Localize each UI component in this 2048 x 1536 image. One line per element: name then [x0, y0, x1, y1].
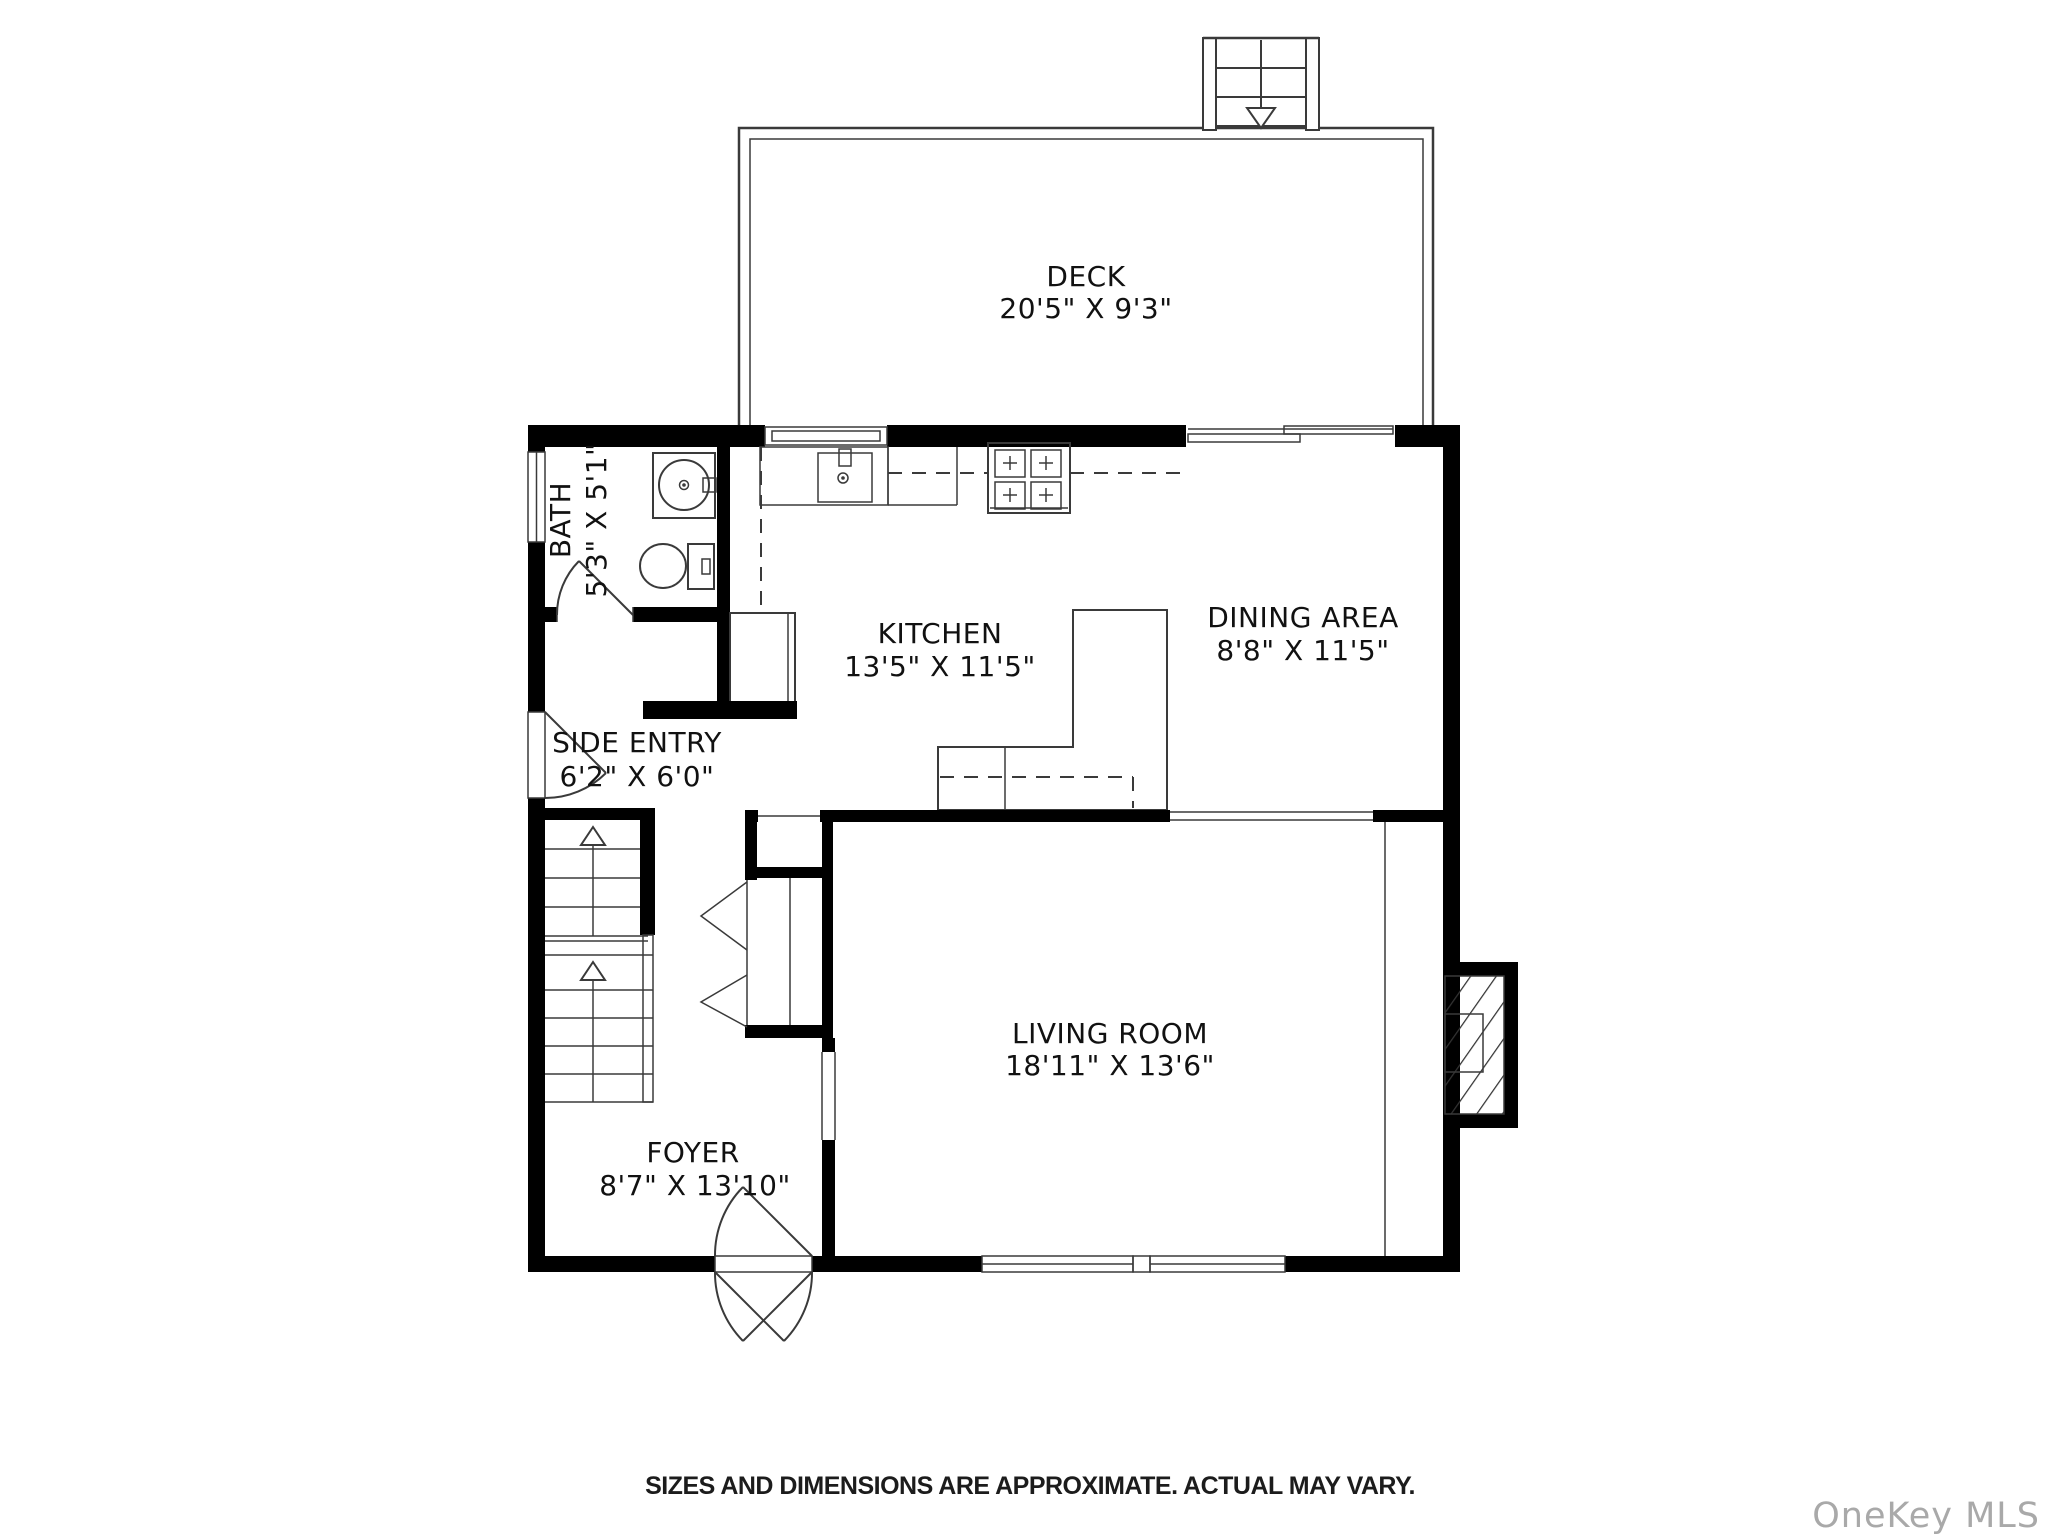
foyer-dims: 8'7" X 13'10" — [599, 1169, 791, 1202]
front-door — [715, 1187, 812, 1341]
kitchen-sink — [818, 449, 872, 502]
floor-plan-drawing: DECK 20'5" X 9'3" BATH 5'3" X 5'1" KITCH… — [0, 0, 2048, 1536]
deck-dims: 20'5" X 9'3" — [999, 292, 1172, 325]
stove — [988, 443, 1070, 513]
bath-sink — [653, 453, 716, 518]
bifold-door-icon — [701, 975, 747, 1027]
watermark: OneKey MLS — [1812, 1496, 2040, 1536]
disclaimer-text: SIZES AND DIMENSIONS ARE APPROXIMATE. AC… — [645, 1472, 1415, 1500]
deck-stairs — [1203, 38, 1319, 130]
side-entry-dims: 6'2" X 6'0" — [560, 760, 715, 793]
stairs-up-arrow-icon — [581, 827, 605, 845]
dining-area-dims: 8'8" X 11'5" — [1216, 634, 1389, 667]
bath-dims: 5'3" X 5'1" — [580, 443, 613, 598]
refrigerator — [730, 613, 795, 705]
kitchen-label: KITCHEN — [878, 617, 1003, 650]
bath-label: BATH — [544, 482, 577, 558]
living-room-windows — [982, 1254, 1285, 1274]
sliding-glass-door — [1186, 423, 1395, 449]
dining-area-label: DINING AREA — [1207, 601, 1399, 634]
floor-plan-page: DECK 20'5" X 9'3" BATH 5'3" X 5'1" KITCH… — [0, 0, 2048, 1536]
living-room-label: LIVING ROOM — [1012, 1017, 1208, 1050]
main-stairs — [545, 808, 655, 1102]
living-room-dims: 18'11" X 13'6" — [1005, 1049, 1215, 1082]
bifold-door-icon — [701, 882, 747, 950]
room-labels: DECK 20'5" X 9'3" BATH 5'3" X 5'1" KITCH… — [544, 260, 1399, 1202]
kitchen-dims: 13'5" X 11'5" — [844, 650, 1036, 683]
foyer-label: FOYER — [646, 1136, 739, 1169]
deck-label: DECK — [1046, 260, 1125, 293]
foyer-closet — [701, 812, 833, 1038]
kitchen-window — [765, 423, 887, 449]
side-entry-label: SIDE ENTRY — [552, 726, 722, 759]
stairs-up-arrow-icon — [581, 962, 605, 980]
kitchen-counters — [760, 447, 1185, 608]
fireplace — [1443, 962, 1518, 1128]
toilet — [640, 544, 714, 589]
foyer-living-divider — [822, 1038, 835, 1256]
